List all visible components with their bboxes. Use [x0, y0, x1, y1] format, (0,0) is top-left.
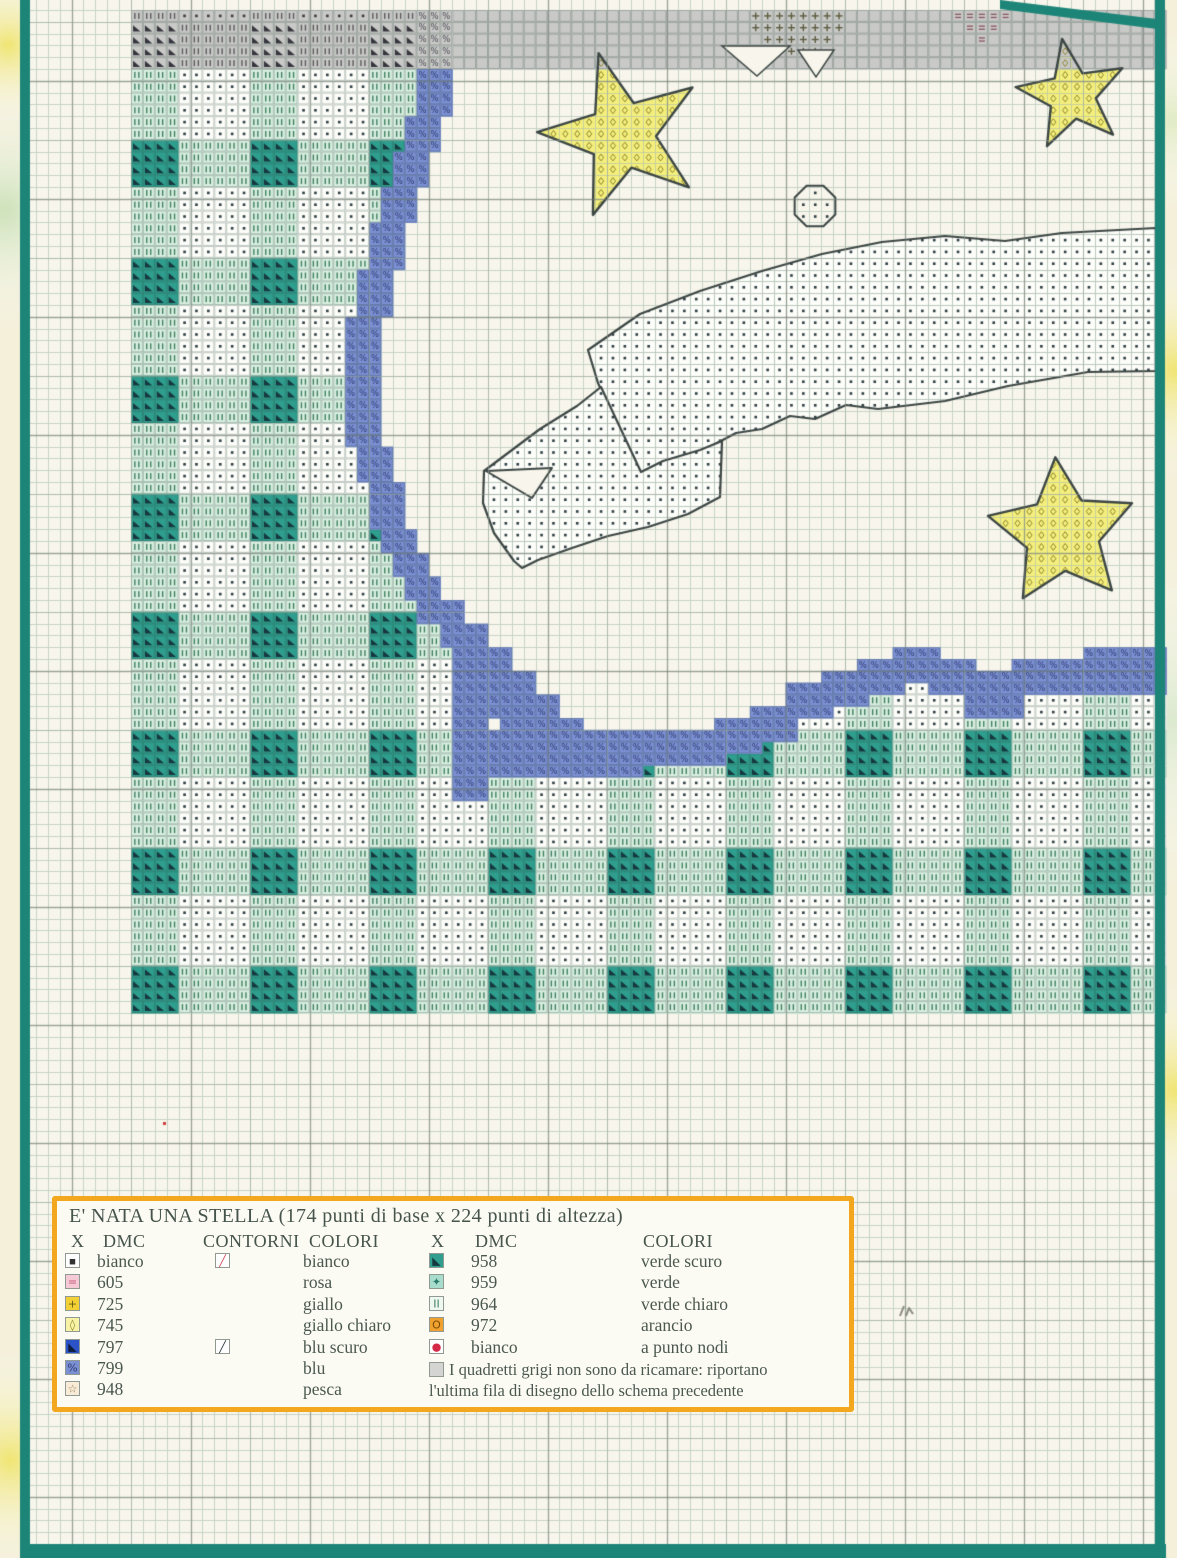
legend-color-name: verde	[641, 1272, 680, 1293]
legend-dmc-code: 958	[471, 1251, 497, 1272]
legend-color-name: arancio	[641, 1315, 693, 1336]
legend-dmc-code: 605	[97, 1272, 123, 1293]
legend-symbol-swatch: ◊	[65, 1317, 80, 1332]
legend-dmc-code: 725	[97, 1294, 123, 1315]
legend-color-name: giallo	[303, 1294, 343, 1315]
legend-contorni-swatch: ╱	[215, 1253, 230, 1268]
legend-header-dmc-right: DMC	[475, 1231, 518, 1252]
legend-symbol-swatch: ◣	[65, 1339, 80, 1354]
legend-symbol-swatch: =	[65, 1274, 80, 1289]
legend-color-name: verde chiaro	[641, 1294, 728, 1315]
legend-header-contorni: CONTORNI	[203, 1231, 300, 1252]
legend-color-name: pesca	[303, 1379, 342, 1400]
legend-symbol-swatch: ✦	[429, 1274, 444, 1289]
legend-color-name: blu	[303, 1358, 325, 1379]
legend-color-name: blu scuro	[303, 1337, 368, 1358]
legend-note-line1: I quadretti grigi non sono da ricamare: …	[449, 1360, 767, 1380]
legend-note-line2: l'ultima fila di disegno dello schema pr…	[429, 1381, 744, 1401]
legend-symbol-swatch: O	[429, 1317, 444, 1332]
legend-header-colori-right: COLORI	[643, 1231, 713, 1252]
legend-dmc-code: bianco	[97, 1251, 144, 1272]
legend-dmc-code: 797	[97, 1337, 123, 1358]
legend-title: E' NATA UNA STELLA (174 punti di base x …	[69, 1205, 623, 1228]
legend-symbol-swatch: II	[429, 1296, 444, 1311]
legend-header-x-right: X	[431, 1231, 445, 1252]
legend-color-name: bianco	[303, 1251, 350, 1272]
legend-symbol-swatch: +	[65, 1296, 80, 1311]
legend-dmc-code: bianco	[471, 1337, 518, 1358]
legend-dmc-code: 948	[97, 1379, 123, 1400]
legend-symbol-swatch: ●	[429, 1339, 444, 1354]
legend-header-colori-left: COLORI	[309, 1231, 379, 1252]
legend-color-name: giallo chiaro	[303, 1315, 391, 1336]
legend-symbol-swatch: ◣	[429, 1253, 444, 1268]
legend-contorni-swatch: ╱	[215, 1339, 230, 1354]
legend-dmc-code: 745	[97, 1315, 123, 1336]
legend-dmc-code: 799	[97, 1358, 123, 1379]
legend-header-x-left: X	[71, 1231, 85, 1252]
legend-symbol-swatch: %	[65, 1360, 80, 1375]
legend-symbol-swatch: ▪	[65, 1253, 80, 1268]
legend-gray-swatch	[429, 1362, 444, 1377]
legend-color-name: verde scuro	[641, 1251, 722, 1272]
legend-header-dmc-left: DMC	[103, 1231, 146, 1252]
legend-color-name: rosa	[303, 1272, 332, 1293]
legend-symbol-swatch: ☆	[65, 1381, 80, 1396]
scanned-cross-stitch-page: E' NATA UNA STELLA (174 punti di base x …	[0, 0, 1177, 1558]
legend-box: E' NATA UNA STELLA (174 punti di base x …	[52, 1196, 854, 1412]
legend-color-name: a punto nodi	[641, 1337, 729, 1358]
legend-dmc-code: 972	[471, 1315, 497, 1336]
legend-dmc-code: 959	[471, 1272, 497, 1293]
legend-dmc-code: 964	[471, 1294, 497, 1315]
